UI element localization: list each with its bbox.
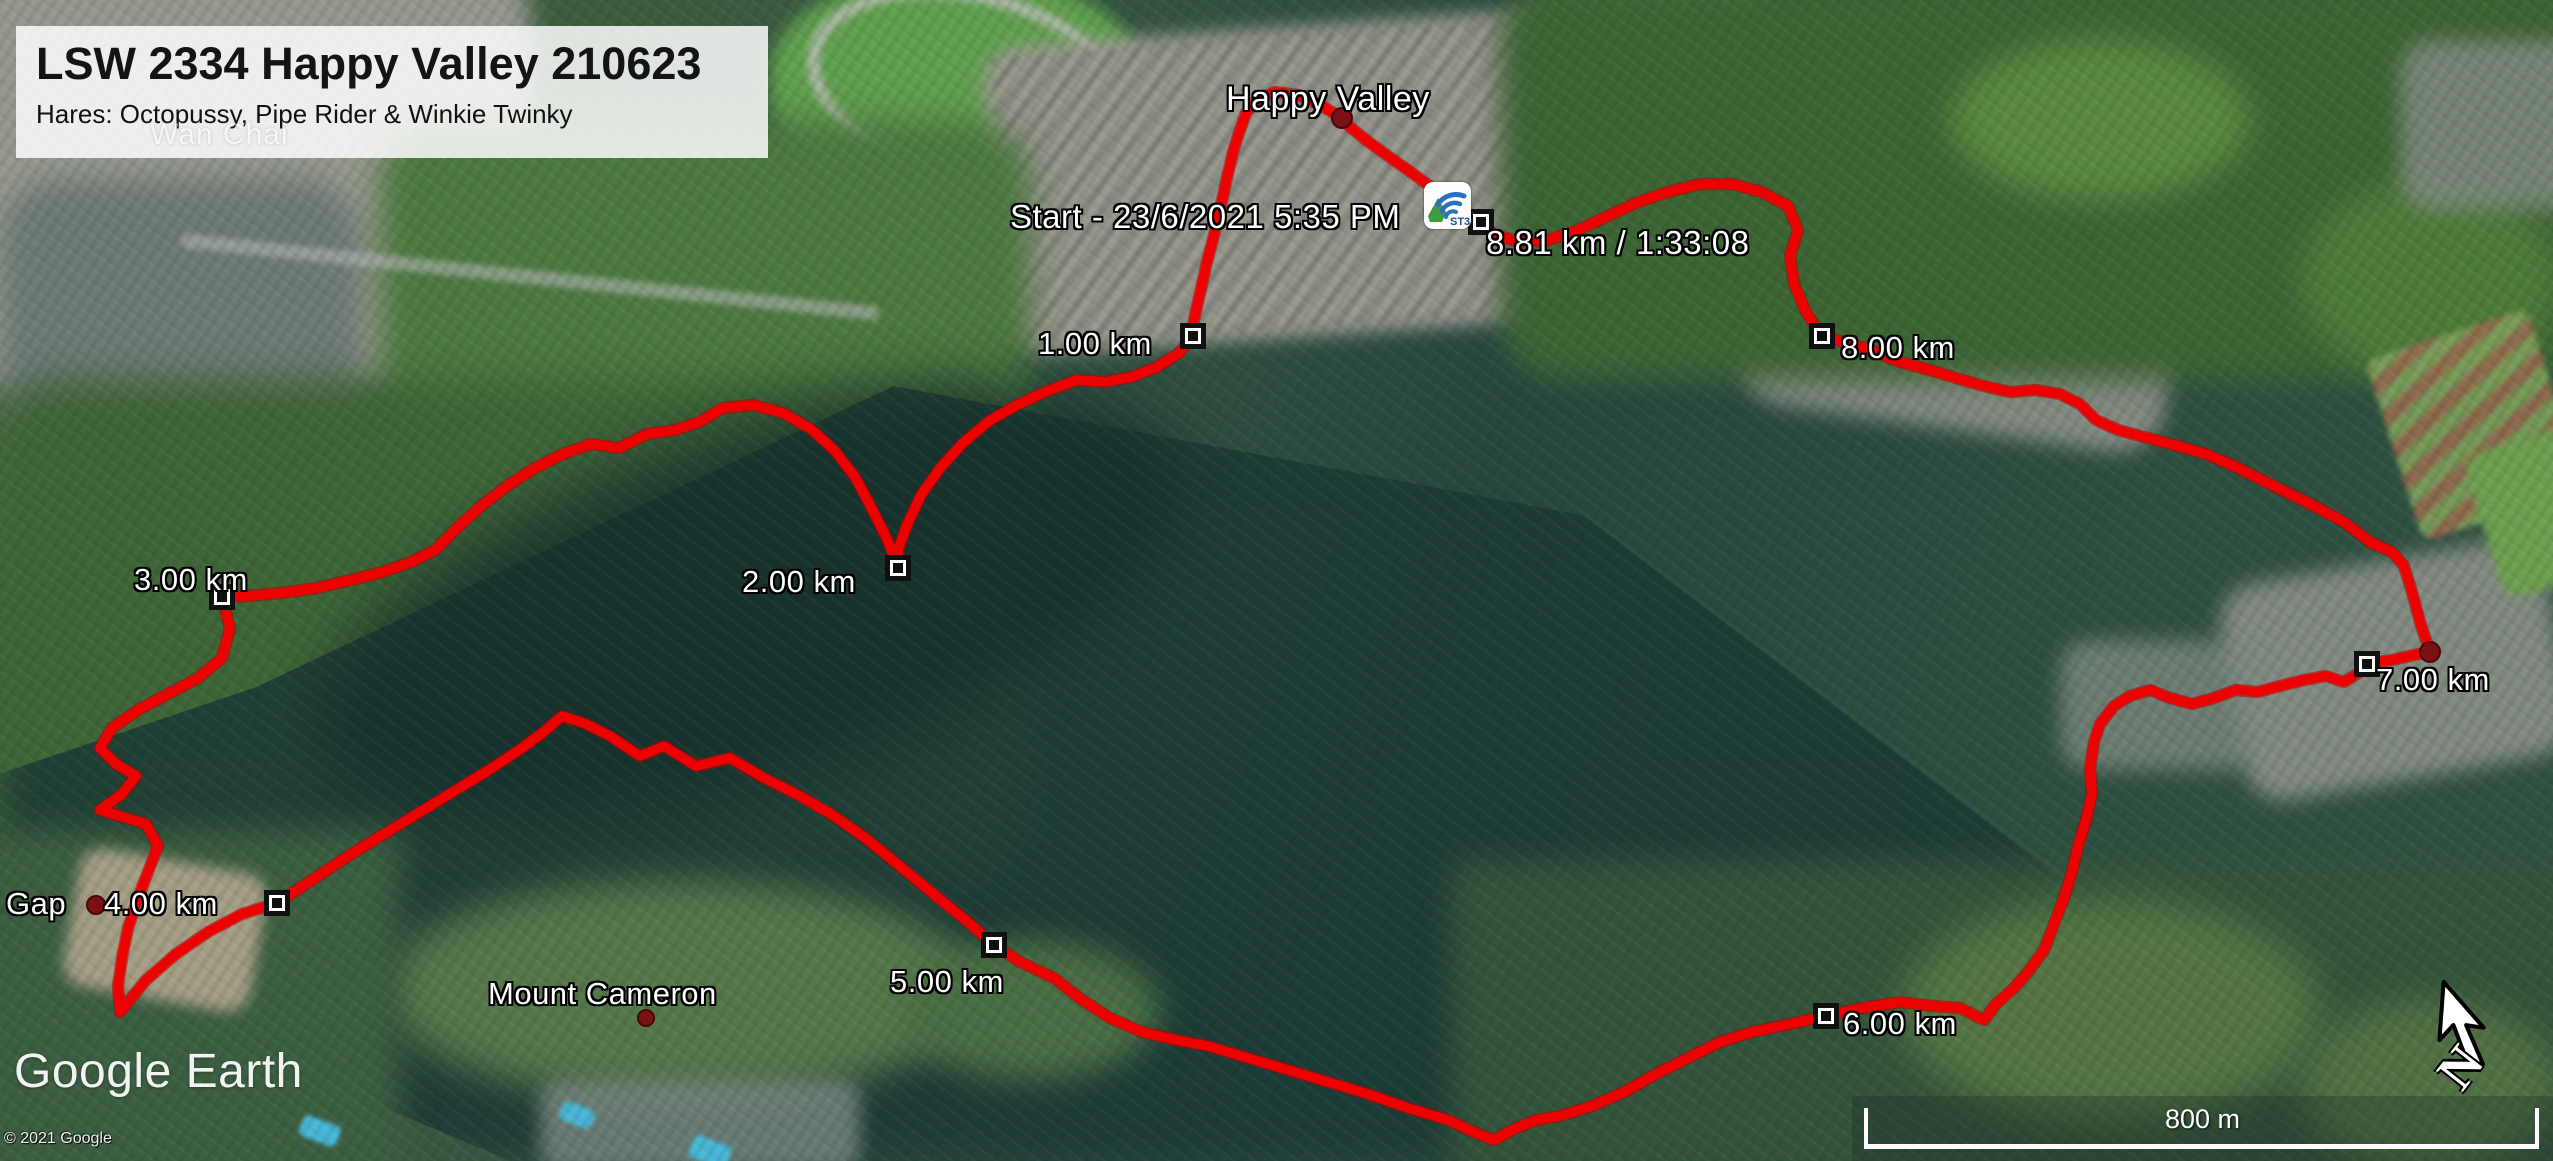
google-earth-map-viewport[interactable]: ST3 Happy Valley Start - 23/6/2021 5:35 … <box>0 0 2553 1161</box>
waypoint-marker-layer <box>0 0 2553 1161</box>
label-km3: 3.00 km <box>134 562 248 598</box>
waypoint-marker-2.00[interactable] <box>885 555 911 581</box>
label-km2: 2.00 km <box>742 564 856 600</box>
tracker-app-icon[interactable]: ST3 <box>1424 182 1471 229</box>
label-happy-valley: Happy Valley <box>1226 80 1430 119</box>
label-km7: 7.00 km <box>2376 662 2490 698</box>
waypoint-marker-4.00[interactable] <box>264 890 290 916</box>
google-earth-logo: Google Earth <box>14 1044 303 1099</box>
waypoint-marker-8.00[interactable] <box>1809 323 1835 349</box>
gap-dot[interactable] <box>86 895 106 915</box>
label-finish-stats: 8.81 km / 1:33:08 <box>1486 224 1750 262</box>
title-box: LSW 2334 Happy Valley 210623 Hares: Octo… <box>16 26 768 158</box>
route-end-dot[interactable] <box>2419 641 2441 663</box>
label-gap: Gap <box>6 886 66 922</box>
waypoint-marker-6.00[interactable] <box>1813 1003 1839 1029</box>
compass[interactable]: N <box>2398 972 2528 1132</box>
label-km8: 8.00 km <box>1841 330 1955 366</box>
page-subtitle: Hares: Octopussy, Pipe Rider & Winkie Tw… <box>36 100 748 128</box>
label-km1: 1.00 km <box>1038 326 1152 362</box>
label-km6: 6.00 km <box>1843 1006 1957 1042</box>
copyright-text: © 2021 Google <box>4 1130 112 1148</box>
page-title: LSW 2334 Happy Valley 210623 <box>36 38 748 90</box>
label-wan-chai-ghost: Wan Chai <box>150 118 289 152</box>
waypoint-marker-5.00[interactable] <box>981 932 1007 958</box>
label-km5: 5.00 km <box>890 964 1004 1000</box>
label-km4: 4.00 km <box>104 886 218 922</box>
label-start: Start - 23/6/2021 5:35 PM <box>1010 198 1400 236</box>
label-mount-cameron: Mount Cameron <box>488 976 717 1012</box>
waypoint-marker-1.00[interactable] <box>1180 323 1206 349</box>
tracker-icon-text: ST3 <box>1450 216 1470 228</box>
